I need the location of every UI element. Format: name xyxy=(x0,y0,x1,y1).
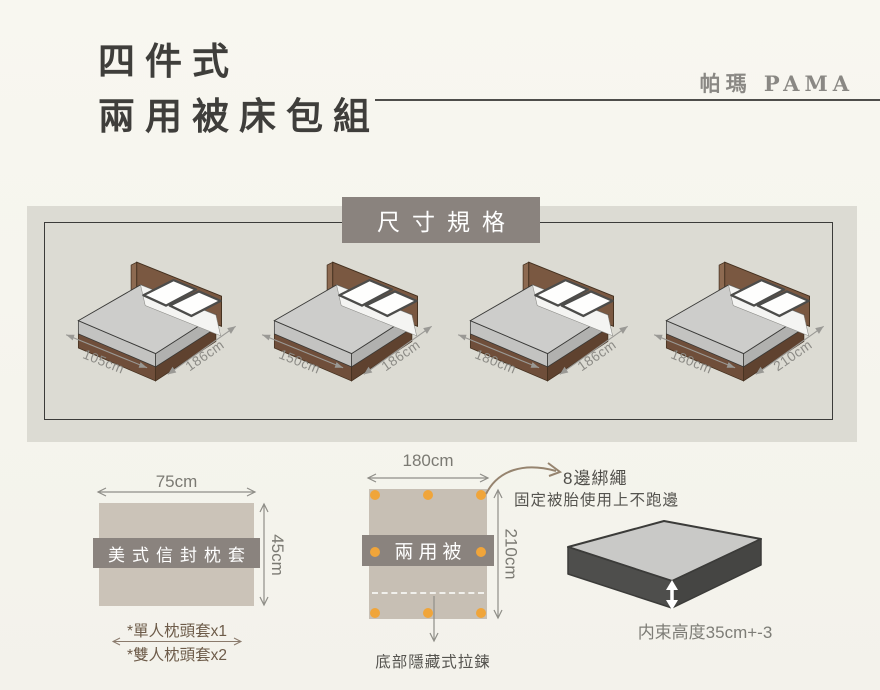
page-title-line1: 四件式 xyxy=(98,34,380,89)
header-divider-line xyxy=(375,99,880,101)
zipper-dashed-line xyxy=(372,592,484,594)
quilt-zipper-arrow xyxy=(429,596,439,642)
tie-dot xyxy=(476,608,486,618)
bed-illustration: 180cm 186cm xyxy=(442,250,640,396)
tie-dot xyxy=(476,547,486,557)
tie-dot xyxy=(423,490,433,500)
pillowcase-name-band: 美式信封枕套 xyxy=(93,538,260,568)
quilt-width-label: 180cm xyxy=(369,451,487,471)
tie-dot xyxy=(370,547,380,557)
pillow-height-label: 45cm xyxy=(267,534,287,576)
bed-illustration: 180cm 210cm xyxy=(638,250,836,396)
tie-dot xyxy=(476,490,486,500)
page-title-line2: 兩用被床包組 xyxy=(98,89,380,144)
infographic-page: 四件式 兩用被床包組 帕瑪 PAMA 尺寸規格 xyxy=(0,0,880,690)
pillow-width-arrow xyxy=(97,487,256,497)
mattress-illustration xyxy=(556,502,800,617)
quilt-name-band: 兩用被 xyxy=(362,535,494,566)
quilt-height-label: 210cm xyxy=(501,528,521,579)
tie-dot xyxy=(370,490,380,500)
mattress-height-note: 内束高度35cm+-3 xyxy=(600,618,810,643)
quilt-width-arrow xyxy=(367,473,489,483)
tie-dot xyxy=(370,608,380,618)
quilt-ties-title: 8邊綁繩 xyxy=(563,464,627,489)
page-title: 四件式 兩用被床包組 xyxy=(98,34,380,144)
pillow-height-label-wrap: 45cm xyxy=(266,503,288,606)
bed-diagram-single: 105cm 186cm xyxy=(50,250,248,400)
bed-diagram-queen: 180cm 186cm xyxy=(442,250,640,400)
brand-name: 帕瑪 PAMA xyxy=(700,68,854,98)
bed-illustration: 105cm 186cm xyxy=(50,250,248,396)
bed-diagram-king: 180cm 210cm xyxy=(638,250,836,400)
tie-dot xyxy=(423,608,433,618)
bed-illustration: 150cm 186cm xyxy=(246,250,444,396)
spec-panel-title: 尺寸規格 xyxy=(342,197,540,243)
bed-diagram-double: 150cm 186cm xyxy=(246,250,444,400)
quilt-zipper-note: 底部隱藏式拉鍊 xyxy=(353,650,513,672)
pillow-note-double: *雙人枕頭套x2 xyxy=(97,643,257,665)
